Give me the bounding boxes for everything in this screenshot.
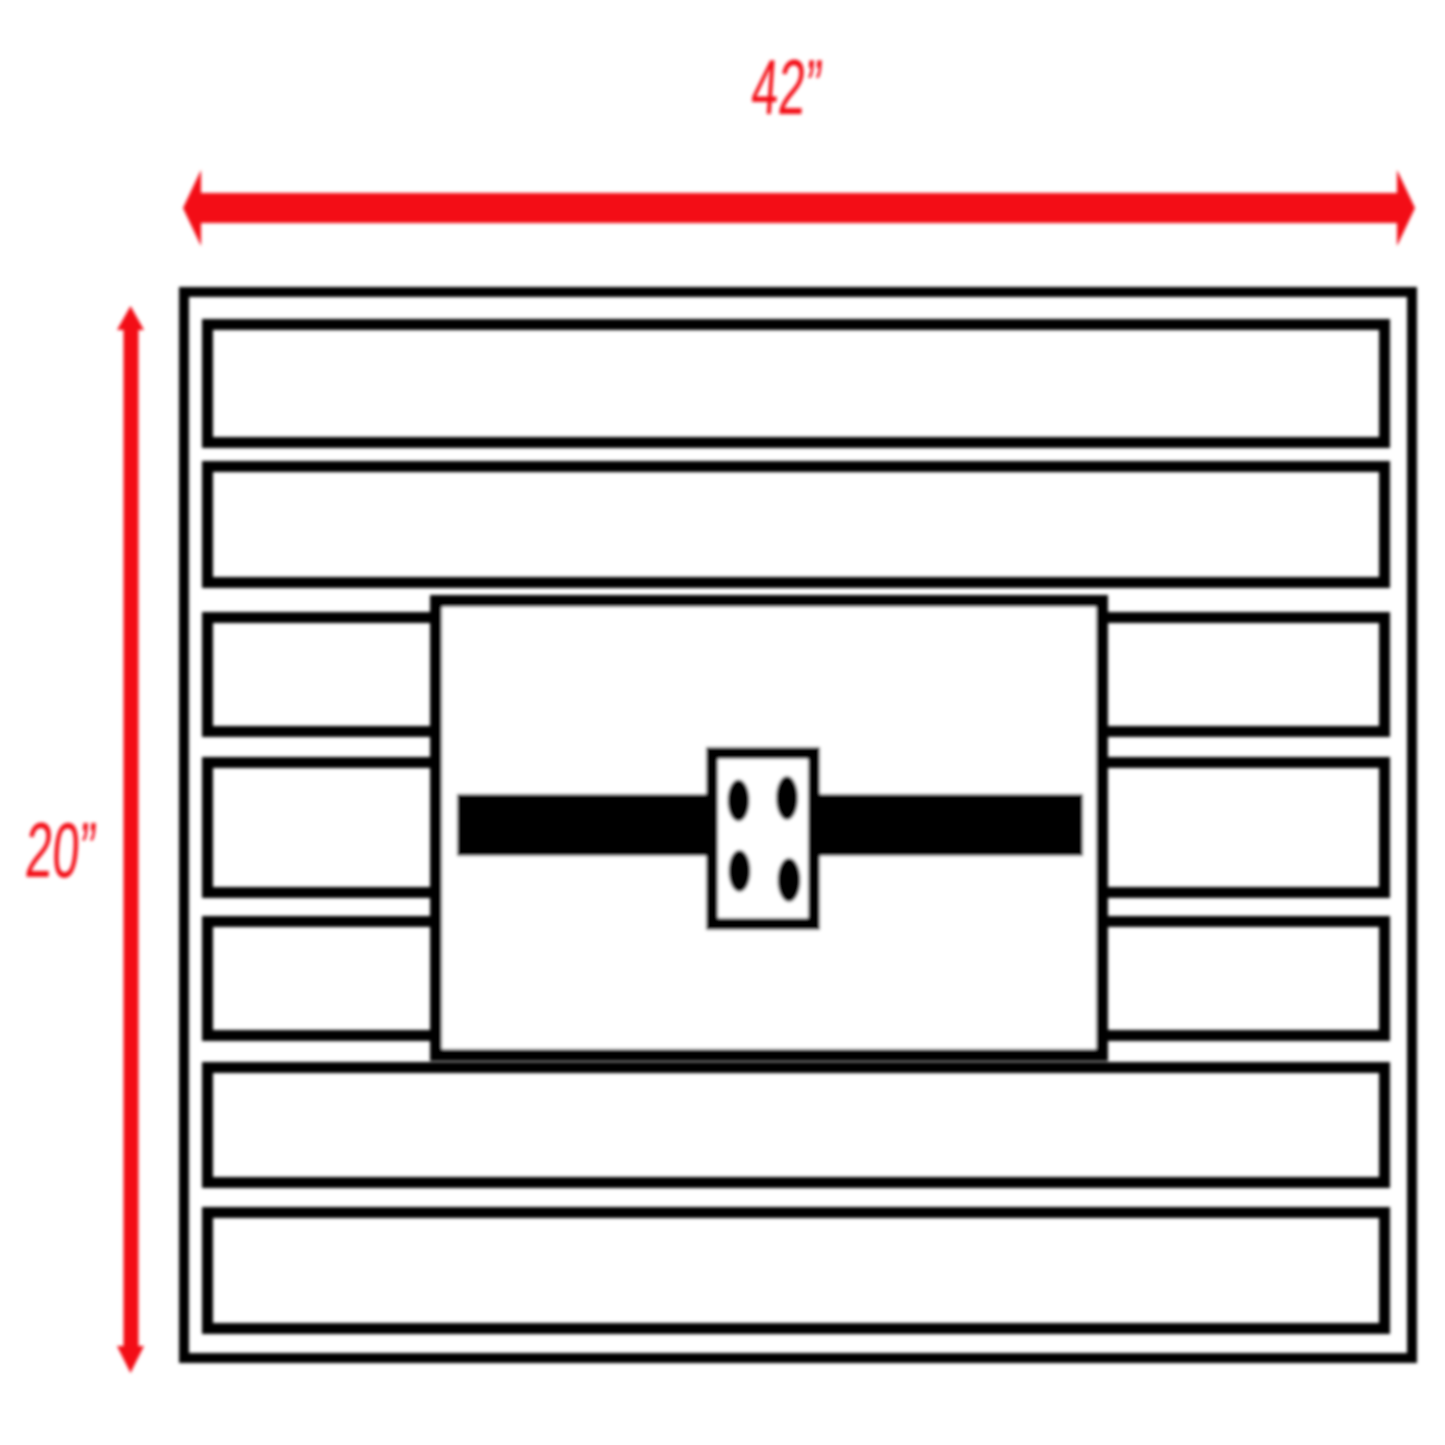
svg-text:20”: 20” xyxy=(23,806,99,894)
svg-text:42”: 42” xyxy=(749,43,825,131)
